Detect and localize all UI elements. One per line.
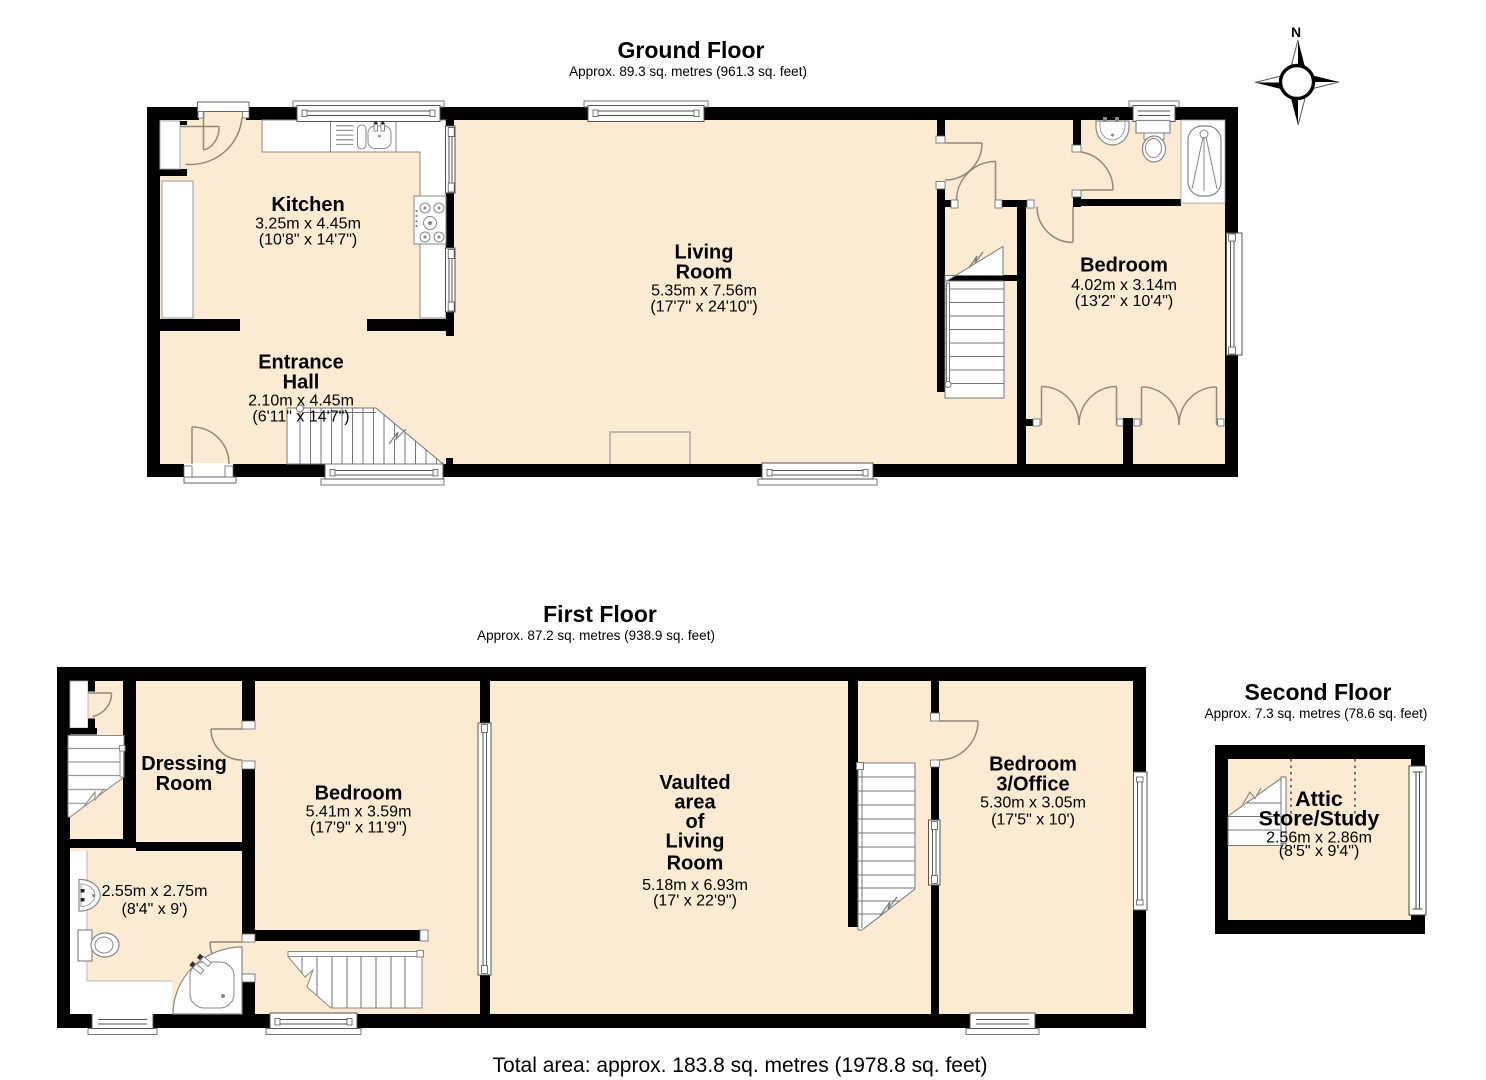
svg-text:2.55m x 2.75m: 2.55m x 2.75m [102, 883, 208, 900]
svg-text:Ground Floor: Ground Floor [618, 37, 765, 63]
svg-text:3/Office: 3/Office [996, 774, 1069, 796]
svg-text:5.41m x 3.59m: 5.41m x 3.59m [306, 804, 412, 821]
svg-text:(8'4" x 9'): (8'4" x 9') [121, 901, 187, 918]
svg-text:(17'5" x 10'): (17'5" x 10') [991, 812, 1075, 829]
svg-text:Bedroom: Bedroom [315, 783, 403, 805]
svg-text:2.10m x 4.45m: 2.10m x 4.45m [248, 393, 354, 410]
svg-text:Room: Room [667, 853, 724, 875]
svg-text:Living: Living [666, 831, 725, 853]
svg-text:Bedroom: Bedroom [1080, 255, 1168, 277]
svg-text:3.25m x 4.45m: 3.25m x 4.45m [255, 216, 361, 233]
svg-text:Entrance: Entrance [258, 352, 344, 374]
svg-text:5.35m x 7.56m: 5.35m x 7.56m [651, 283, 757, 300]
svg-text:Living: Living [675, 242, 734, 264]
svg-text:Approx. 89.3 sq. metres (961.3: Approx. 89.3 sq. metres (961.3 sq. feet) [569, 64, 807, 79]
svg-text:Approx. 7.3 sq. metres (78.6 s: Approx. 7.3 sq. metres (78.6 sq. feet) [1205, 706, 1428, 721]
svg-text:(13'2" x 10'4"): (13'2" x 10'4") [1075, 293, 1173, 310]
svg-text:(17'7" x 24'10"): (17'7" x 24'10") [650, 299, 757, 316]
svg-text:5.30m x 3.05m: 5.30m x 3.05m [980, 795, 1086, 812]
svg-text:(6'11" x 14'7"): (6'11" x 14'7") [252, 409, 349, 426]
svg-text:Room: Room [156, 773, 213, 795]
svg-text:Approx. 87.2 sq. metres (938.9: Approx. 87.2 sq. metres (938.9 sq. feet) [477, 628, 715, 643]
svg-text:N: N [1291, 24, 1301, 40]
svg-text:First Floor: First Floor [543, 601, 657, 627]
svg-text:Hall: Hall [283, 372, 320, 394]
svg-text:4.02m x 3.14m: 4.02m x 3.14m [1071, 277, 1177, 294]
svg-text:(10'8" x 14'7"): (10'8" x 14'7") [259, 232, 357, 249]
svg-text:5.18m x 6.93m: 5.18m x 6.93m [642, 877, 748, 894]
svg-text:(17'9" x 11'9"): (17'9" x 11'9") [310, 820, 407, 837]
svg-text:Store/Study: Store/Study [1259, 807, 1380, 831]
svg-text:(8'5" x 9'4"): (8'5" x 9'4") [1279, 843, 1360, 860]
svg-text:Dressing: Dressing [141, 753, 227, 775]
svg-text:Kitchen: Kitchen [271, 194, 344, 216]
svg-text:Total area: approx. 183.8 sq.: Total area: approx. 183.8 sq. metres (19… [493, 1054, 988, 1077]
svg-text:Bedroom: Bedroom [989, 754, 1077, 776]
svg-text:(17' x 22'9"): (17' x 22'9") [653, 893, 737, 910]
svg-text:Room: Room [676, 262, 733, 284]
svg-text:Second Floor: Second Floor [1245, 679, 1392, 705]
